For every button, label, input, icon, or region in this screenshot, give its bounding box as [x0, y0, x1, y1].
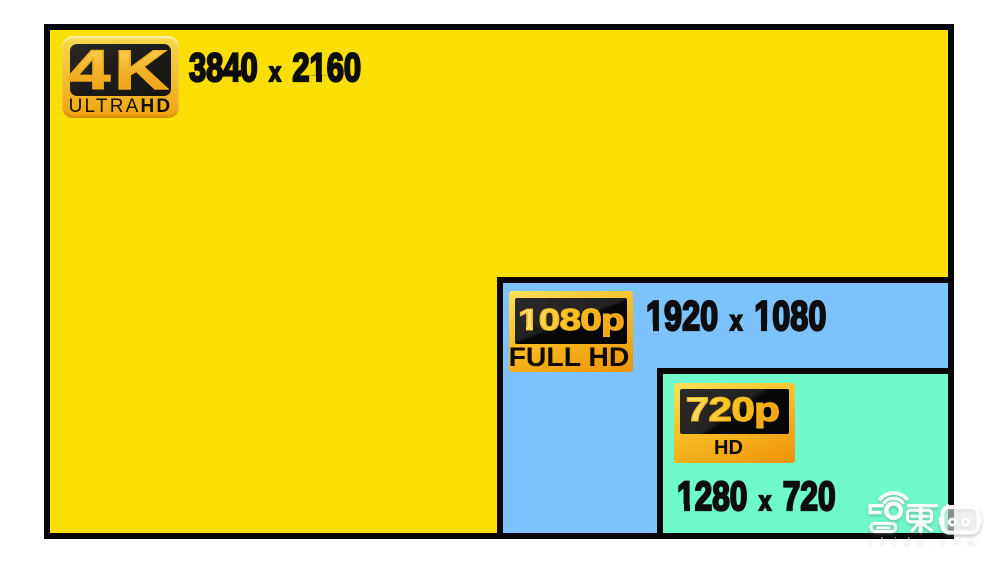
- svg-text:zhidx.com: zhidx.com: [867, 537, 983, 547]
